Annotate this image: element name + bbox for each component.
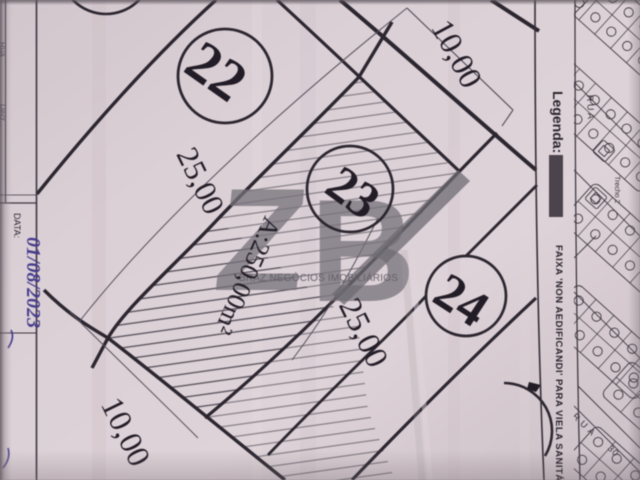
svg-text:FAIXA 'NON AEDIFICANDI' PARA V: FAIXA 'NON AEDIFICANDI' PARA VIELA SANIT… xyxy=(553,245,564,480)
svg-text:Trecho 2: Trecho 2 xyxy=(613,176,620,203)
svg-text:01/08/2023: 01/08/2023 xyxy=(22,237,44,328)
svg-text:DATA:: DATA: xyxy=(12,213,22,238)
svg-text:RUA: RUA xyxy=(585,95,596,122)
svg-text:Legenda:: Legenda: xyxy=(550,91,566,153)
